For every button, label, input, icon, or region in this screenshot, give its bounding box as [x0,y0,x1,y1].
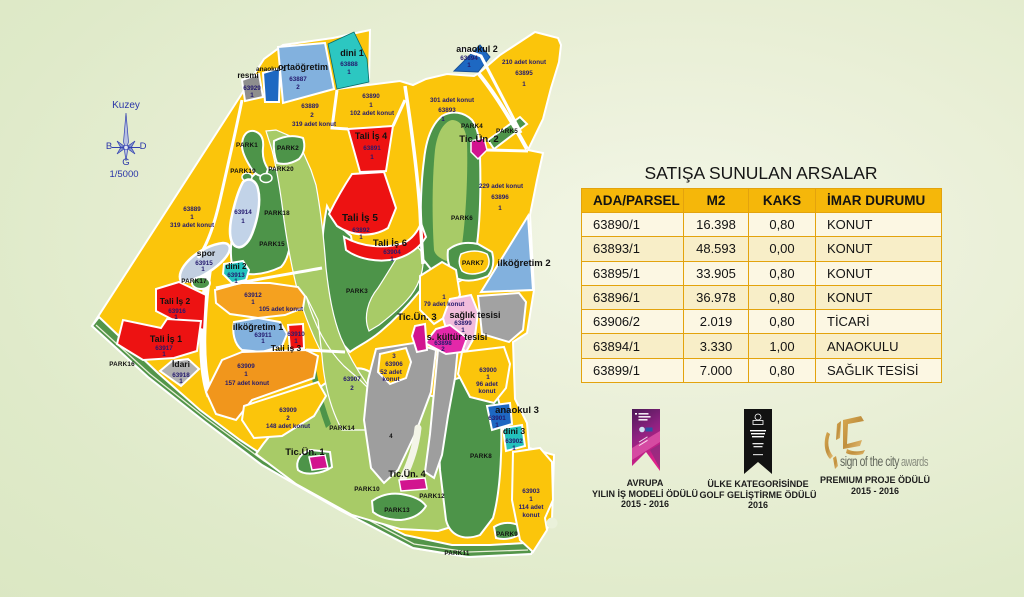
svg-text:konut: konut [382,376,400,383]
svg-text:PARK8: PARK8 [470,453,492,460]
svg-text:63903: 63903 [522,488,540,495]
svg-text:1: 1 [261,338,265,345]
svg-text:ilköğretim 1: ilköğretim 1 [233,322,284,332]
svg-text:63910: 63910 [287,331,305,338]
svg-text:1: 1 [522,81,526,88]
svg-text:1: 1 [244,371,248,378]
svg-text:63894: 63894 [460,55,478,62]
svg-text:1: 1 [442,294,446,301]
svg-text:1: 1 [498,205,502,212]
svg-text:spor: spor [197,248,216,258]
svg-text:sign of the city: sign of the city [840,453,899,469]
svg-text:148 adet konut: 148 adet konut [266,423,311,430]
svg-text:1: 1 [174,314,178,321]
svg-text:PARK12: PARK12 [419,493,445,500]
svg-text:63904: 63904 [383,249,401,256]
svg-text:63902: 63902 [505,438,523,445]
svg-text:63896: 63896 [491,194,509,201]
svg-text:1: 1 [294,338,298,345]
svg-text:2: 2 [296,84,300,91]
svg-text:114 adet: 114 adet [519,504,545,511]
svg-text:1: 1 [179,378,183,385]
svg-text:2: 2 [286,415,290,422]
svg-text:63895: 63895 [515,70,533,77]
svg-text:PARK2: PARK2 [277,145,299,152]
svg-text:Tic.Ün. 1: Tic.Ün. 1 [285,447,325,458]
svg-text:Tali İş 5: Tali İş 5 [342,211,378,224]
svg-text:PARK1: PARK1 [236,142,258,149]
svg-text:1: 1 [201,266,205,273]
svg-text:3: 3 [392,353,396,360]
svg-text:63893: 63893 [438,107,456,114]
svg-text:63890: 63890 [362,93,380,100]
svg-text:PARK6: PARK6 [451,215,473,222]
svg-text:96 adet: 96 adet [476,381,499,388]
svg-text:Kuzey: Kuzey [112,100,140,111]
svg-text:63909: 63909 [237,363,255,370]
svg-text:PARK20: PARK20 [268,166,294,173]
svg-text:52 adet: 52 adet [380,369,403,376]
svg-text:1: 1 [241,218,245,225]
svg-text:Tic.Ün. 4: Tic.Ün. 4 [388,469,425,479]
svg-text:63901: 63901 [488,415,506,422]
svg-text:PARK14: PARK14 [329,425,355,432]
svg-text:1: 1 [512,445,516,452]
svg-text:229 adet konut: 229 adet konut [479,183,524,190]
svg-text:awards: awards [901,455,928,469]
svg-text:301 adet konut: 301 adet konut [430,97,475,104]
svg-text:157 adet konut: 157 adet konut [225,380,270,387]
svg-text:dini 2: dini 2 [226,262,247,271]
svg-text:PARK3: PARK3 [346,288,368,295]
svg-text:PARK16: PARK16 [109,361,135,368]
svg-text:1: 1 [359,234,363,241]
svg-text:63906: 63906 [385,361,403,368]
svg-text:PARK17: PARK17 [181,278,207,285]
svg-text:İdari: İdari [172,359,190,369]
svg-text:1: 1 [347,69,351,76]
svg-text:PARK4: PARK4 [461,123,483,130]
svg-text:Tali İş 6: Tali İş 6 [373,238,407,249]
svg-text:1: 1 [495,422,499,429]
svg-text:63892: 63892 [352,227,370,234]
svg-text:PARK19: PARK19 [230,168,256,175]
svg-text:ortaöğretim: ortaöğretim [278,62,328,72]
svg-text:1: 1 [250,92,254,99]
svg-text:konut: konut [478,388,496,395]
svg-text:Tali İş 4: Tali İş 4 [355,131,387,141]
svg-text:konut: konut [522,512,540,519]
svg-text:PARK10: PARK10 [354,486,380,493]
svg-text:1: 1 [162,351,166,358]
svg-text:1: 1 [441,116,445,123]
svg-text:PARK7: PARK7 [462,260,484,267]
svg-text:4: 4 [389,434,393,440]
svg-text:63912: 63912 [244,292,262,299]
svg-text:1: 1 [190,214,194,221]
svg-text:1: 1 [370,154,374,161]
svg-text:102 adet konut: 102 adet konut [350,110,395,117]
svg-text:Tic.Ün. 2: Tic.Ün. 2 [459,134,498,145]
svg-text:63914: 63914 [234,209,252,216]
svg-text:2: 2 [310,112,314,119]
svg-text:ilköğretim 2: ilköğretim 2 [497,258,550,269]
svg-text:63899: 63899 [454,320,472,327]
svg-text:Tic.Ün. 3: Tic.Ün. 3 [397,312,436,323]
svg-text:dini 3: dini 3 [503,426,525,436]
svg-text:105 adet konut: 105 adet konut [259,306,304,313]
svg-text:1: 1 [251,299,255,306]
svg-text:D: D [140,141,147,152]
svg-text:1: 1 [486,374,490,381]
svg-text:PARK15: PARK15 [259,241,285,248]
svg-text:79 adet konut: 79 adet konut [424,301,465,308]
svg-text:319 adet konut: 319 adet konut [170,222,215,229]
svg-text:PARK11: PARK11 [444,550,470,557]
svg-text:63907: 63907 [343,376,361,383]
svg-text:63909: 63909 [279,407,297,414]
svg-text:Tali İş 2: Tali İş 2 [160,296,191,306]
svg-text:G: G [122,157,129,168]
svg-text:1: 1 [529,496,533,503]
svg-text:anaokul 2: anaokul 2 [456,44,498,54]
svg-text:1: 1 [234,278,238,285]
svg-text:63891: 63891 [363,145,381,152]
svg-text:PARK5: PARK5 [496,128,518,135]
svg-text:63888: 63888 [340,61,358,68]
svg-text:PARK9: PARK9 [496,531,518,538]
svg-text:2: 2 [441,346,445,353]
svg-text:1: 1 [390,256,394,263]
svg-text:63887: 63887 [289,76,307,83]
svg-text:PARK18: PARK18 [264,210,290,217]
svg-text:1: 1 [369,102,373,109]
svg-text:63889: 63889 [183,206,201,213]
svg-text:1: 1 [467,62,471,69]
svg-text:319 adet konut: 319 adet konut [292,121,337,128]
svg-text:Tali İş 1: Tali İş 1 [150,334,182,344]
svg-text:B: B [106,141,112,152]
svg-text:63889: 63889 [301,103,319,110]
svg-text:2: 2 [350,385,354,392]
svg-text:sağlık tesisi: sağlık tesisi [449,310,500,320]
svg-text:1: 1 [461,327,465,334]
svg-text:63929: 63929 [243,85,261,92]
svg-text:PARK13: PARK13 [384,507,410,514]
svg-text:1/5000: 1/5000 [109,169,138,180]
svg-text:dini 1: dini 1 [340,48,364,58]
svg-text:210 adet konut: 210 adet konut [502,59,547,66]
svg-text:63900: 63900 [479,367,497,374]
